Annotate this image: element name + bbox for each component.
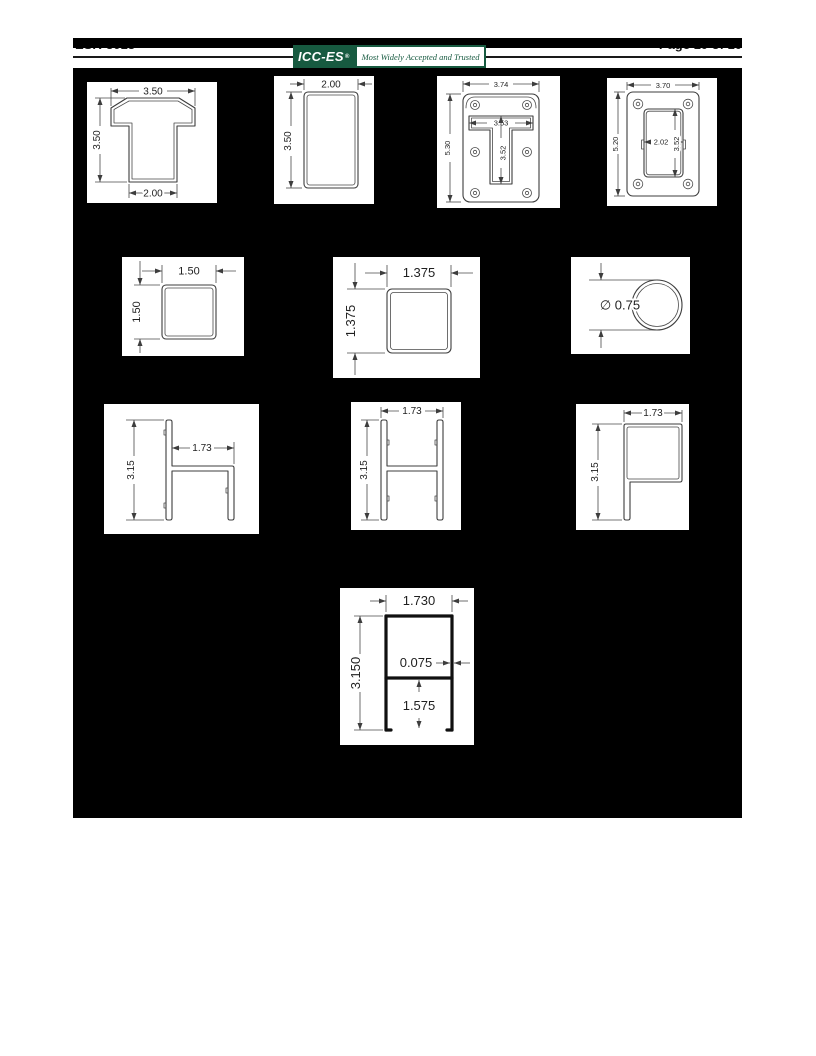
icc-es-logo-text: ICC-ES [298, 49, 344, 64]
h-channel-drawing: 1.73 3.15 [104, 404, 259, 534]
figure-panel-round-tube: ∅ 0.75 [571, 257, 690, 354]
dim-height-label: 3.15 [126, 460, 137, 480]
dim-leg-label: 1.575 [403, 698, 436, 713]
bottom-rail-drawing: 1.730 3.150 0.075 1.575 [340, 588, 474, 745]
dim-height-label: 3.15 [590, 462, 601, 482]
figure-panel-bottom-rail: 1.730 3.150 0.075 1.575 [340, 588, 474, 745]
rect-tube-drawing: 2.00 3.50 [274, 76, 374, 204]
dim-width-label: 3.70 [656, 81, 671, 90]
dim-width-label: 3.74 [494, 80, 509, 89]
figure-panel-square-tube-1375: 1.375 1.375 [333, 257, 480, 378]
dim-width-label: 1.73 [192, 443, 212, 454]
plate-drawing: 3.70 5.20 2.02 3.52 [607, 78, 717, 206]
dim-width-label: 1.73 [643, 408, 663, 419]
dim-slot-height-label: 3.52 [499, 146, 508, 161]
figure-panel-double-channel: 1.73 3.15 [351, 402, 461, 530]
figure-panel-plate: 3.70 5.20 2.02 3.52 [607, 78, 717, 206]
figures-canvas: 3.50 3.50 2.00 2.00 [73, 68, 742, 818]
dim-opening-height-label: 3.52 [672, 137, 681, 152]
double-channel-drawing: 1.73 3.15 [351, 402, 461, 530]
dim-width-label: 1.50 [178, 266, 199, 278]
dim-height-label: 3.150 [348, 657, 363, 690]
dim-height-label: 5.30 [443, 141, 452, 156]
icc-es-logo-mark: ICC-ES® [293, 45, 355, 68]
square-tube-1375-drawing: 1.375 1.375 [333, 257, 480, 378]
bracket-drawing: 3.74 5.30 3.53 3.52 [437, 76, 560, 208]
dim-opening-width-label: 2.02 [654, 138, 669, 147]
figure-panel-t-shaped-post: 3.50 3.50 2.00 [87, 82, 217, 203]
p-channel-drawing: 1.73 3.15 [576, 404, 689, 530]
dim-height-label: 3.15 [359, 460, 370, 480]
dim-base-label: 2.00 [143, 189, 163, 200]
dim-height-label: 1.50 [131, 301, 143, 322]
square-tube-150-drawing: 1.50 1.50 [122, 257, 244, 356]
dim-width-label: 3.50 [143, 87, 163, 98]
registered-mark: ® [345, 54, 350, 60]
dim-height-label: 3.50 [92, 130, 103, 150]
dim-width-label: 1.73 [402, 406, 422, 417]
round-tube-drawing: ∅ 0.75 [571, 257, 690, 354]
figure-panel-rect-tube: 2.00 3.50 [274, 76, 374, 204]
dim-width-label: 1.730 [403, 593, 436, 608]
figure-panel-p-channel: 1.73 3.15 [576, 404, 689, 530]
dim-height-label: 5.20 [611, 137, 620, 152]
figure-panel-bracket: 3.74 5.30 3.53 3.52 [437, 76, 560, 208]
dim-height-label: 3.50 [283, 131, 294, 151]
t-shaped-post-drawing: 3.50 3.50 2.00 [87, 82, 217, 203]
dim-wall-label: 0.075 [400, 655, 433, 670]
icc-es-tagline: Most Widely Accepted and Trusted [355, 45, 487, 68]
dim-width-label: 1.375 [403, 265, 436, 280]
figure-panel-h-channel: 1.73 3.15 [104, 404, 259, 534]
figure-panel-square-tube-150: 1.50 1.50 [122, 257, 244, 356]
report-page: ESR-3013 Page 10 of 10 ICC-ES® Most Wide… [0, 0, 816, 1056]
dim-width-label: 2.00 [321, 80, 341, 91]
dim-height-label: 1.375 [343, 305, 358, 338]
icc-es-logo: ICC-ES® Most Widely Accepted and Trusted [293, 45, 486, 68]
dim-diameter-label: ∅ 0.75 [600, 298, 640, 313]
